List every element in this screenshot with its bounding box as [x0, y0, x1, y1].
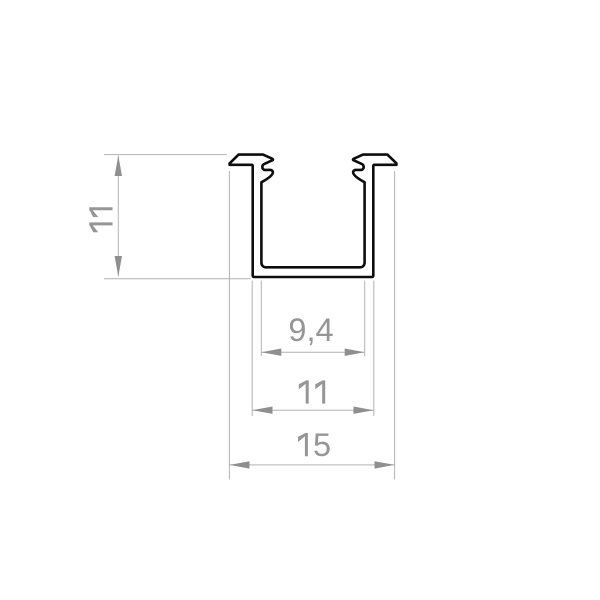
svg-text:9,4: 9,4 — [288, 312, 333, 348]
svg-text:5: 5 — [313, 427, 331, 463]
